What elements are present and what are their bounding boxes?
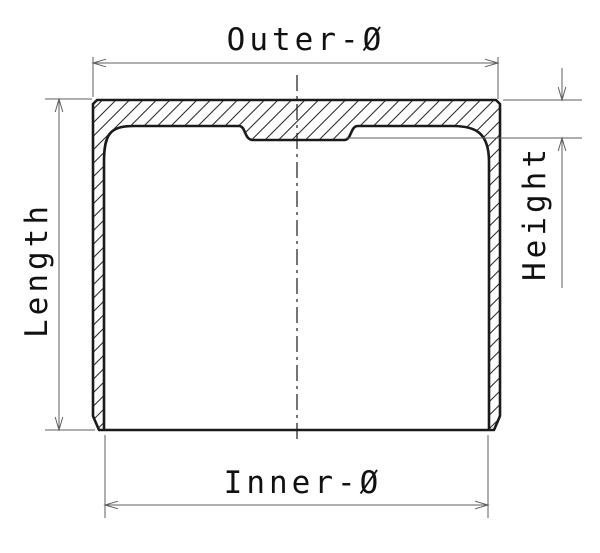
length-label: Length — [19, 202, 55, 338]
outer-diameter-label: Outer-Ø — [227, 22, 386, 58]
height-label: Height — [517, 145, 553, 281]
section-drawing: Outer-Ø Inner-Ø Length Height — [0, 0, 600, 553]
part-cross-section — [93, 75, 500, 444]
outer-diameter-dimension — [93, 57, 498, 99]
technical-drawing-canvas: Outer-Ø Inner-Ø Length Height — [0, 0, 600, 553]
inner-diameter-label: Inner-Ø — [224, 465, 383, 501]
